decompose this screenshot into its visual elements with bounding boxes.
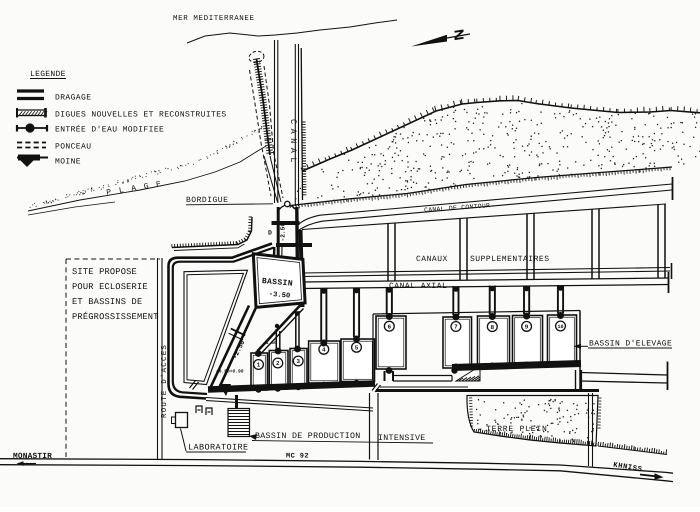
svg-text:MOINE: MOINE	[55, 158, 81, 167]
svg-text:MER MEDITERRANEE: MER MEDITERRANEE	[173, 15, 255, 23]
svg-text:+0.50+0.90: +0.50+0.90	[216, 369, 244, 375]
svg-text:ENTRÉE D'EAU MODIFIEE: ENTRÉE D'EAU MODIFIEE	[55, 125, 164, 135]
svg-text:DRAGAGE: DRAGAGE	[55, 94, 91, 103]
svg-text:8: 8	[490, 324, 494, 331]
svg-text:BASSIN D'ELEVAGE: BASSIN D'ELEVAGE	[589, 340, 672, 349]
svg-text:ET BASSINS DE: ET BASSINS DE	[72, 297, 142, 307]
svg-text:SUPPLEMENTAIRES: SUPPLEMENTAIRES	[470, 255, 550, 264]
svg-text:CANAUX: CANAUX	[416, 255, 448, 264]
svg-text:6: 6	[387, 323, 391, 330]
svg-text:CANAL AXIAL: CANAL AXIAL	[389, 282, 447, 291]
svg-text:D: D	[268, 230, 272, 237]
svg-text:9: 9	[525, 324, 529, 331]
svg-text:DIGUES NOUVELLES ET RECONSTRUI: DIGUES NOUVELLES ET RECONSTRUITES	[55, 111, 227, 120]
svg-text:-1.50: -1.50	[263, 340, 277, 346]
svg-text:BORDIGUE: BORDIGUE	[186, 196, 228, 205]
svg-text:TERRE PLEIN: TERRE PLEIN	[486, 425, 548, 434]
svg-text:2: 2	[276, 360, 280, 367]
svg-text:3: 3	[296, 358, 300, 365]
svg-text:1: 1	[257, 362, 261, 369]
svg-text:-2.50: -2.50	[280, 223, 287, 242]
svg-text:10: 10	[557, 324, 563, 330]
svg-text:LABORATOIRE: LABORATOIRE	[188, 443, 249, 453]
svg-text:5: 5	[355, 345, 359, 352]
svg-text:MONASTIR: MONASTIR	[13, 452, 52, 461]
svg-text:CANAL: CANAL	[288, 119, 298, 167]
svg-text:POUR ECLOSERIE: POUR ECLOSERIE	[72, 282, 148, 292]
svg-text:PONCEAU: PONCEAU	[55, 143, 91, 152]
svg-text:SITE PROPOSE: SITE PROPOSE	[72, 267, 137, 277]
svg-text:BASSIN DE PRODUCTION: BASSIN DE PRODUCTION	[255, 432, 361, 441]
svg-text:4: 4	[322, 347, 326, 354]
svg-text:MC 92: MC 92	[286, 453, 309, 461]
svg-text:ROUTE D'ACCES: ROUTE D'ACCES	[160, 344, 169, 418]
svg-text:LEGENDE: LEGENDE	[30, 70, 66, 79]
svg-text:PRÉGROSSISSEMENT: PRÉGROSSISSEMENT	[72, 311, 159, 322]
svg-text:7: 7	[454, 324, 458, 331]
svg-text:INTENSIVE: INTENSIVE	[378, 434, 426, 443]
